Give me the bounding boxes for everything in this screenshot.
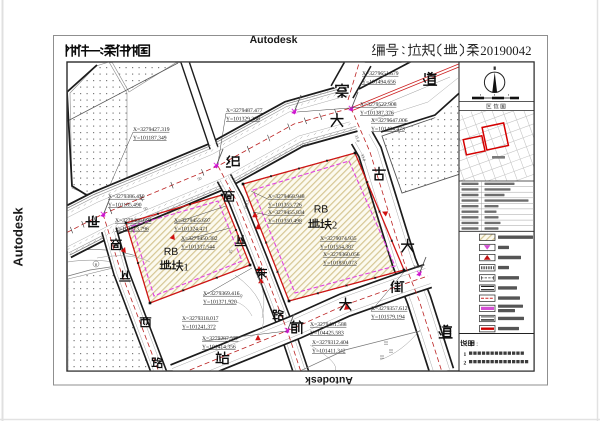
- svg-text:B: B: [95, 262, 98, 267]
- svg-text:2: 2: [464, 361, 467, 367]
- svg-text:RB: RB: [314, 204, 329, 216]
- svg-text:2: 2: [332, 221, 337, 232]
- svg-text:30.98: 30.98: [413, 264, 422, 269]
- svg-text:1: 1: [184, 263, 189, 274]
- svg-text::: :: [476, 341, 478, 348]
- svg-text:1: 1: [464, 352, 467, 358]
- svg-text:RB: RB: [164, 246, 179, 258]
- svg-text:Autodesk: Autodesk: [11, 207, 26, 267]
- svg-text:Autodesk: Autodesk: [305, 374, 353, 386]
- svg-text:Autodesk: Autodesk: [250, 34, 298, 46]
- svg-text:20190042: 20190042: [480, 44, 531, 58]
